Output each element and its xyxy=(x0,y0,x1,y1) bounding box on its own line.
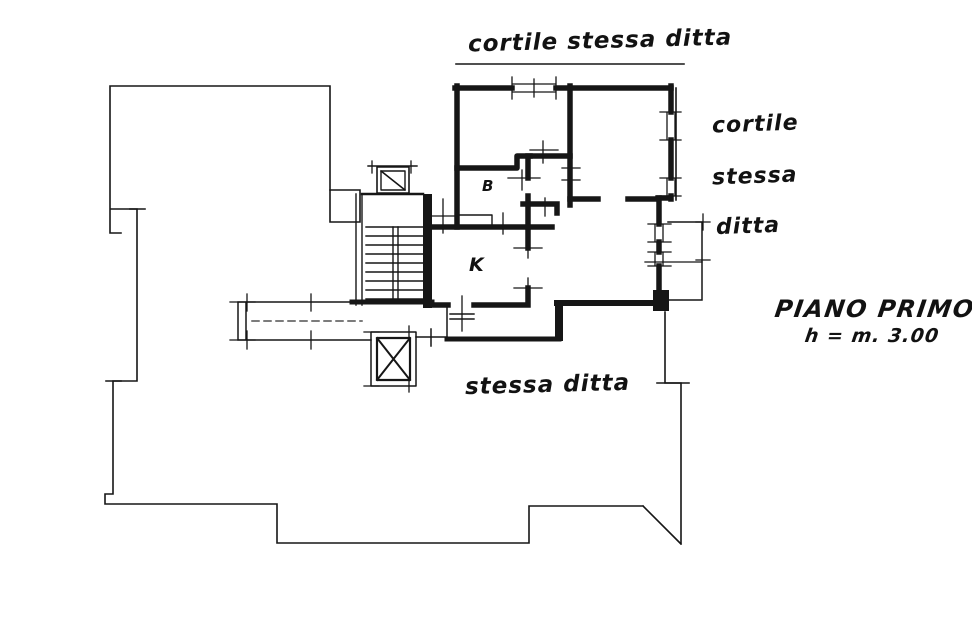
room-divider xyxy=(457,156,530,168)
elevator-shaft xyxy=(364,326,416,392)
window-marks xyxy=(512,77,681,266)
label-floor-name: PIANO PRIMO xyxy=(773,295,972,323)
apartment-walls xyxy=(428,86,671,311)
stair-treads xyxy=(366,227,423,299)
label-courtyard-right-3: ditta xyxy=(716,213,781,240)
kitchen-walls xyxy=(428,227,552,305)
floor-plan-page: cortile stessa ditta cortile stessa ditt… xyxy=(0,0,972,625)
label-room-k: K xyxy=(469,254,484,276)
label-courtyard-right-2: stessa xyxy=(712,163,798,191)
terrace-bottom xyxy=(447,303,563,341)
stair-wall xyxy=(423,194,432,308)
label-floor-height: h = m. 3.00 xyxy=(803,325,940,347)
stairwell xyxy=(352,161,432,308)
vestibule-walls xyxy=(523,156,570,227)
label-courtyard-right-1: cortile xyxy=(712,110,799,138)
label-courtyard-bottom: stessa ditta xyxy=(465,370,631,400)
label-room-b: B xyxy=(482,177,493,195)
